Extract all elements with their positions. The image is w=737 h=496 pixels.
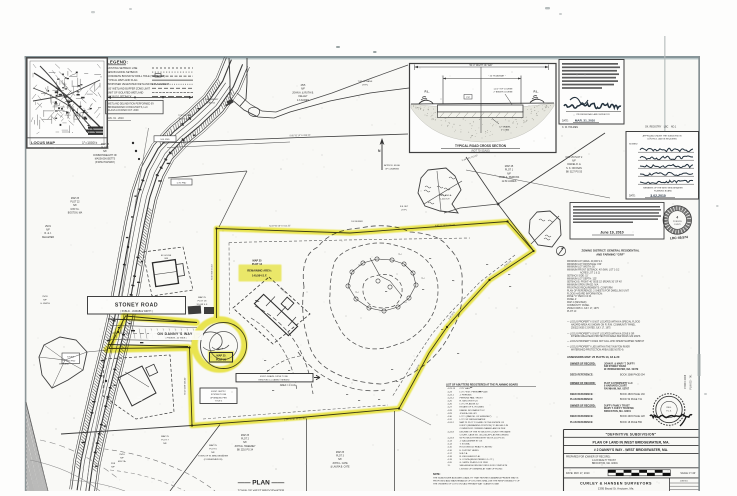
svg-text:BOSTON, MA: BOSTON, MA — [68, 211, 83, 214]
svg-text:JOHN A. KELLEY: JOHN A. KELLEY — [460, 412, 478, 415]
svg-text:LOT 2 PLAN BK 52: LOT 2 PLAN BK 52 — [460, 403, 480, 406]
svg-text:T. SOUSA: T. SOUSA — [460, 443, 471, 446]
svg-text:S.B. SET: S.B. SET — [400, 206, 409, 208]
svg-text:( PUBLIC - VARIABLE WIDTH ): ( PUBLIC - VARIABLE WIDTH ) — [120, 310, 153, 313]
svg-text:BROCKTON, MA. 02301: BROCKTON, MA. 02301 — [592, 462, 618, 465]
svg-text:BOOK 2915 PAGE 128: BOOK 2915 PAGE 128 — [620, 415, 645, 418]
svg-text:MEMBERS OF THE WEST BRIDGEWATE: MEMBERS OF THE WEST BRIDGEWATER — [643, 187, 683, 190]
svg-text:TP-4: TP-4 — [358, 265, 362, 267]
svg-text:MAP 25: MAP 25 — [253, 259, 263, 262]
svg-text:APPROX. EDGE: APPROX. EDGE — [384, 164, 400, 167]
svg-text:BRIDGEWATER CONSULTANTS, LLC: BRIDGEWATER CONSULTANTS, LLC — [108, 106, 148, 109]
svg-text:4-17: 4-17 — [448, 453, 453, 455]
svg-text:PLAN OF REFERENCE: 2 SHEETS F: PLAN OF REFERENCE: 2 SHEETS FOR DWELLING… — [567, 289, 630, 292]
svg-text:DATE:: DATE: — [562, 120, 569, 123]
svg-text:June 19, 2010: June 19, 2010 — [600, 231, 623, 235]
svg-text:—— PLAN ——: —— PLAN —— — [238, 480, 285, 487]
svg-text:BROCKTON, MA. 02301: BROCKTON, MA. 02301 — [604, 410, 631, 413]
svg-text:S.B. FND: S.B. FND — [160, 139, 170, 141]
svg-text:— LOCUS PROPERTY DOES NOT FALL: — LOCUS PROPERTY DOES NOT FALL W/IN NHES… — [567, 340, 645, 343]
svg-text:EXISTING SETBACK LINE: EXISTING SETBACK LINE — [107, 67, 138, 70]
svg-text:TITLE 5: TITLE 5 — [215, 401, 223, 403]
svg-text:25/16: 25/16 — [119, 454, 125, 456]
svg-text:CITY HALL: CITY HALL — [460, 387, 472, 390]
svg-text:TYPICAL ROAD CROSS SECTION: TYPICAL ROAD CROSS SECTION — [455, 144, 507, 148]
svg-text:PLAN REFERENCE:: PLAN REFERENCE: — [570, 421, 593, 424]
svg-text:J. GALLAGHER ET UX: J. GALLAGHER ET UX — [460, 440, 483, 443]
svg-text:DANIEL R. &: DANIEL R. & — [567, 163, 581, 166]
svg-text:BK 2210 PG 34: BK 2210 PG 34 — [237, 449, 254, 451]
svg-text:100’ WETLAND BUFFER ZONE LIMIT: 100’ WETLAND BUFFER ZONE LIMIT — [107, 87, 150, 90]
svg-text:G. SMITH PLAN 14 OF 1968: G. SMITH PLAN 14 OF 1968 — [460, 461, 489, 464]
svg-text:LEGEND:: LEGEND: — [107, 60, 128, 65]
svg-text:COURT, CASE NO. 08-1234-EP1 AS: COURT, CASE NO. 08-1234-EP1 AS RECORDED — [460, 433, 510, 436]
svg-text:140,584 S.F.: 140,584 S.F. — [252, 273, 267, 277]
svg-text:CONTROL LAW IS REQUIRED: CONTROL LAW IS REQUIRED — [647, 137, 678, 140]
svg-text:25/5: 25/5 — [301, 84, 306, 87]
svg-text:1,240 S.F.: 1,240 S.F. — [440, 199, 450, 201]
svg-text:RAYNHAM, MA. 02767: RAYNHAM, MA. 02767 — [604, 388, 630, 391]
svg-text:2″ BINDER COURSE: 2″ BINDER COURSE — [493, 92, 513, 94]
svg-text:PLAN 52 - 741: PLAN 52 - 741 — [690, 374, 693, 390]
svg-text:R. & J.: R. & J. — [45, 233, 52, 235]
svg-text:DEED REFERENCE:: DEED REFERENCE: — [570, 393, 593, 396]
svg-text:R. KELLEHER ET AL: R. KELLEHER ET AL — [460, 455, 482, 458]
svg-text:4-14: 4-14 — [448, 444, 453, 446]
svg-text:LOCUS MAP: LOCUS MAP — [31, 140, 55, 145]
svg-text:MAP 2 (REVISED): MAP 2 (REVISED) — [567, 301, 587, 304]
svg-text:STONEY ROAD: STONEY ROAD — [115, 303, 158, 309]
svg-text:ASSESSORS MAP: 25 PLOTS 13,: ASSESSORS MAP: 25 PLOTS 13, 18 & 20 — [567, 355, 620, 359]
svg-text:″ 24’ ROADWAY ″: ″ 24’ ROADWAY ″ — [488, 75, 505, 78]
svg-text:PLYMOUTH: PLYMOUTH — [673, 221, 683, 223]
svg-text:4-24-9: 4-24-9 — [448, 437, 455, 439]
svg-text:(NOT TO SCALE): (NOT TO SCALE) — [471, 150, 489, 153]
svg-text:PREPARED FOR (OWNER OF RECORD): PREPARED FOR (OWNER OF RECORD): — [566, 455, 611, 458]
svg-text:MAP 25: MAP 25 — [336, 451, 345, 454]
svg-text:A & R REALTY TRUST: A & R REALTY TRUST — [592, 459, 616, 462]
svg-text:— LOCUS PROPERTY IS NOT LOCATE: — LOCUS PROPERTY IS NOT LOCATED WITHIN A… — [567, 332, 635, 335]
svg-text:4-30: 4-30 — [448, 416, 453, 418]
svg-text:(TYP.): (TYP.) — [362, 85, 368, 87]
svg-text:SCALE: 1″=40’: SCALE: 1″=40’ — [680, 472, 696, 475]
svg-text:SYSTEM TO BE: SYSTEM TO BE — [211, 394, 227, 396]
svg-text:CURLEY & HANSEN SURVEYORS: CURLEY & HANSEN SURVEYORS — [580, 481, 652, 485]
svg-text:MAR. 31, 2010: MAR. 31, 2010 — [575, 119, 596, 123]
svg-text:25/19: 25/19 — [61, 360, 67, 362]
svg-text:MINIMUM LOT FRONTAGE: 150’: MINIMUM LOT FRONTAGE: 150’ — [567, 263, 602, 266]
svg-text:M.B.T.A.: M.B.T.A. — [460, 452, 469, 455]
svg-text:3-02-2010: 3-02-2010 — [650, 194, 666, 198]
svg-text:PLAN REFERENCE:: PLAN REFERENCE: — [570, 398, 593, 401]
svg-text:TOP OF BANK: TOP OF BANK — [358, 80, 373, 83]
svg-text:PANEL #: PANEL # — [567, 298, 577, 301]
svg-text:MAP 25: MAP 25 — [217, 355, 227, 358]
svg-text:OK. REGISTRY LBC NO.1: OK. REGISTRY LBC NO.1 — [645, 126, 677, 128]
svg-text:4-23: 4-23 — [448, 391, 453, 393]
svg-text:NOTE:: NOTE: — [433, 473, 441, 476]
svg-text:ACRES LOT 1 & 2): ACRES LOT 1 & 2) — [580, 272, 600, 275]
svg-text:4: 4 — [676, 216, 678, 220]
svg-text:APPROVAL UNDER THE SUBDIVISION: APPROVAL UNDER THE SUBDIVISION — [643, 134, 682, 137]
svg-text:11.: 11. — [448, 465, 451, 467]
svg-text:100’ BUFFER: 100’ BUFFER — [351, 221, 363, 223]
svg-text:DECREE OF THE PLYMOUTH COUNTY: DECREE OF THE PLYMOUTH COUNTY PROBATE — [460, 430, 512, 433]
svg-text:COMMUNITY PANEL: COMMUNITY PANEL — [567, 304, 590, 307]
svg-text:MAP 25: MAP 25 — [198, 296, 207, 299]
svg-text:OWNER OF RECORD:: OWNER OF RECORD: — [570, 362, 596, 365]
svg-text:4-24-2: 4-24-2 — [448, 397, 455, 399]
svg-text:PERKINS FAM. TRUST: PERKINS FAM. TRUST — [460, 396, 484, 399]
svg-text:250322 0005 C JULY 17, 1975: 250322 0005 C JULY 17, 1975 — [567, 308, 599, 310]
svg-text:TOWN OF W. BRIDGEWATER: TOWN OF W. BRIDGEWATER — [198, 455, 229, 458]
svg-text:4.3 ACRES: 4.3 ACRES — [297, 99, 309, 102]
svg-text:PLAN OF LAND IN WEST BRID: PLAN OF LAND IN WEST BRIDGEWATER, MA. — [593, 440, 670, 444]
svg-text:P.L.: P.L. — [534, 90, 539, 94]
svg-text:REMAINING AREA:: REMAINING AREA: — [247, 268, 272, 272]
svg-text:SIGNED:: SIGNED: — [629, 144, 638, 146]
svg-text:LIMIT OF ISOLATED WETLAND: LIMIT OF ISOLATED WETLAND — [107, 91, 143, 94]
svg-text:TOP OF WAY: TOP OF WAY — [178, 114, 192, 117]
svg-text:COMMONWEALTH OF: COMMONWEALTH OF — [93, 154, 118, 157]
svg-text:PROFESSIONAL LAND SURVEYOR: PROFESSIONAL LAND SURVEYOR — [576, 113, 610, 116]
svg-text:EX. HOUSE: EX. HOUSE — [161, 255, 172, 257]
svg-text:OWNER OF RECORD:: OWNER OF RECORD: — [570, 404, 596, 407]
svg-text:4-26: 4-26 — [448, 404, 453, 406]
svg-text:P.L.: P.L. — [425, 90, 430, 94]
svg-text:4-24-1: 4-24-1 — [448, 394, 455, 396]
svg-text:TP-4: TP-4 — [398, 254, 402, 256]
svg-text:HAZARD AREA AS SHOWN ON F.I.R.: HAZARD AREA AS SHOWN ON F.I.R.M. COMMUNI… — [571, 324, 636, 327]
svg-text:25/21: 25/21 — [45, 226, 51, 228]
svg-text:REG.: REG. — [666, 407, 672, 409]
svg-text:4-16: 4-16 — [448, 450, 453, 452]
svg-text:DEED REFERENCE:: DEED REFERENCE: — [570, 415, 593, 418]
svg-text:INTERIM WELLHEAD PROTECTION AR: INTERIM WELLHEAD PROTECTION AREA PER MAS… — [571, 335, 641, 338]
svg-text:W. BRIDGEWATER, MA. 02379: W. BRIDGEWATER, MA. 02379 — [604, 368, 639, 371]
svg-text:N 02°11’W 158.00’: N 02°11’W 158.00’ — [185, 377, 187, 395]
svg-text:MAP 25: MAP 25 — [71, 197, 80, 200]
svg-text:FRONTAGE REQUIREMENTS: CONFOR: FRONTAGE REQUIREMENTS: CONFORM — [567, 286, 613, 289]
svg-text:EX.: EX. — [137, 397, 141, 399]
svg-text:LIST OF ABUTTERS REGISTERED AT: LIST OF ABUTTERS REGISTERED AT THE PLANN… — [446, 384, 518, 387]
svg-text:PLANNING BOARD: PLANNING BOARD — [654, 189, 672, 192]
svg-text:50’-0″ RIGHT OF WAY: 50’-0″ RIGHT OF WAY — [469, 64, 493, 67]
svg-text:# 2 DANNY’S WAY - WEST: # 2 DANNY’S WAY - WEST BRIDGEWATER, MA. — [594, 448, 668, 452]
svg-text:1395 Broad St. Any: 1395 Broad St. Anytown, Ma. — [598, 487, 634, 491]
svg-text:12.6± ACRES: 12.6± ACRES — [502, 180, 517, 183]
svg-text:MINIMUM OPEN SPACE: N/A: MINIMUM OPEN SPACE: N/A — [567, 283, 599, 286]
svg-text:THE SUBDIVIDER ASSUMES LIABILI: THE SUBDIVIDER ASSUMES LIABILITY THAT HE… — [433, 476, 519, 479]
svg-text:4-25: 4-25 — [448, 401, 453, 403]
svg-text:N/F: N/F — [507, 172, 511, 175]
svg-text:PLOT 6: PLOT 6 — [209, 449, 217, 451]
svg-text:THE OWNERS OF LOTS ON SAID PRI: THE OWNERS OF LOTS ON SAID PRIVATE WAY /… — [433, 482, 500, 485]
svg-text:MINIMUM LOT AREA: 40,000 S.F.: MINIMUM LOT AREA: 40,000 S.F. — [567, 260, 603, 263]
svg-text:PLOT 7: PLOT 7 — [161, 440, 169, 442]
svg-text:4-27: 4-27 — [448, 407, 453, 409]
svg-text:″DEFINITIVE SUBDIVISION″: ″DEFINITIVE SUBDIVISION″ — [606, 432, 657, 436]
svg-text:N/F: N/F — [243, 442, 247, 444]
svg-text:DANIEL NOONAN ET UX: DANIEL NOONAN ET UX — [460, 409, 486, 412]
svg-text:TP-4: TP-4 — [355, 292, 359, 294]
svg-text:SETBACK SIDE: 15’: SETBACK SIDE: 15’ — [567, 275, 589, 278]
svg-text:MAP 25: MAP 25 — [241, 434, 250, 437]
svg-text:S. K. NOONAN: S. K. NOONAN — [566, 167, 582, 170]
svg-text:TP-4: TP-4 — [403, 302, 407, 304]
svg-text:4-15: 4-15 — [448, 447, 453, 449]
svg-text:MAP 25: MAP 25 — [505, 165, 514, 168]
svg-text:KELLEHER: KELLEHER — [42, 237, 54, 239]
svg-text:N/F: N/F — [73, 205, 77, 207]
svg-text:BOOK 3088 PAGE 094: BOOK 3088 PAGE 094 — [620, 374, 645, 377]
svg-text:N 01°30’E 93.50’: N 01°30’E 93.50’ — [212, 264, 214, 280]
svg-text:PROPOSED AND MAINTENANCE OF UT: PROPOSED AND MAINTENANCE OF UTILITIES SH… — [433, 479, 520, 482]
svg-text:N/F: N/F — [301, 88, 305, 91]
svg-text:PLOT 20: PLOT 20 — [216, 358, 227, 361]
svg-text:OF CLEARING: OF CLEARING — [385, 167, 399, 170]
svg-text:BOOK 18 PAGE 550: BOOK 18 PAGE 550 — [620, 421, 643, 424]
svg-text:& LAURA B. CATE: & LAURA B. CATE — [330, 465, 350, 468]
svg-text:N/F: N/F — [103, 151, 107, 153]
svg-text:D.H. FND: D.H. FND — [177, 182, 187, 184]
svg-text:COMMON BY OWNERS NAMED ABOVE P: COMMON BY OWNERS NAMED ABOVE PER — [460, 427, 506, 430]
svg-text:N/F: N/F — [572, 161, 576, 163]
svg-text:DEED REFERENCE:: DEED REFERENCE: — [570, 374, 593, 377]
svg-text:PLOT 22: PLOT 22 — [70, 202, 80, 204]
svg-text:N/F: N/F — [338, 459, 342, 461]
svg-text:PLOT 13: PLOT 13 — [252, 263, 263, 266]
svg-text:PLOT 1: PLOT 1 — [101, 148, 110, 150]
svg-text:JOHN L. CATE: JOHN L. CATE — [332, 462, 348, 465]
svg-text:ZONING DISTRICT: GENERAL RESI: ZONING DISTRICT: GENERAL RESIDENTIAL — [581, 249, 639, 253]
svg-text:BK 3127 PG 55: BK 3127 PG 55 — [566, 171, 583, 173]
svg-text:M.B.T.A.: M.B.T.A. — [118, 460, 127, 463]
svg-text:— LOCUS PROPERTY IS NOT LOCATE: — LOCUS PROPERTY IS NOT LOCATED WITHIN A… — [567, 321, 640, 324]
svg-text:— LOCUS PROPERTY LIES WITHIN T: — LOCUS PROPERTY LIES WITHIN THE TAUNTON… — [567, 346, 630, 349]
svg-text:ZONE ″C″ PER F.I.R.M.: ZONE ″C″ PER F.I.R.M. — [567, 296, 592, 298]
svg-text:S. COSTA (REGISTERED LD. CT.): S. COSTA (REGISTERED LD. CT.) — [460, 458, 494, 461]
svg-text:4-20: 4-20 — [448, 462, 453, 464]
svg-text:OWNER OF RECORD:: OWNER OF RECORD: — [570, 382, 596, 385]
svg-text:8 BK 04: 8 BK 04 — [207, 103, 216, 105]
svg-text:4-18: 4-18 — [448, 456, 453, 458]
svg-text:AND FARMING ″GRF″: AND FARMING ″GRF″ — [596, 252, 625, 256]
svg-text:BOOK 4815 PAGE 130: BOOK 4815 PAGE 130 — [620, 393, 645, 396]
svg-text:WETLAND DELINEATION PERFORMED: WETLAND DELINEATION PERFORMED BY — [108, 102, 154, 105]
svg-text:J. PERKINS: J. PERKINS — [460, 394, 472, 396]
svg-text:(TYP): (TYP) — [401, 209, 407, 211]
svg-text:ESTATE OF K. HOLMES: ESTATE OF K. HOLMES — [460, 406, 485, 409]
svg-text:WETLAND: WETLAND — [59, 362, 69, 365]
svg-text:DATE:: DATE: — [629, 195, 636, 198]
svg-text:12″ GRAVEL: 12″ GRAVEL — [499, 126, 511, 129]
svg-text:(CONSERVATION): (CONSERVATION) — [204, 458, 223, 461]
svg-text:R. TAYLOR ET UX: R. TAYLOR ET UX — [460, 400, 479, 403]
svg-text:250322 0005 C DATED JULY 17,: 250322 0005 C DATED JULY 17, 1975 — [571, 326, 611, 329]
svg-text:PLOT 1: PLOT 1 — [505, 169, 514, 172]
svg-text:MAP 25: MAP 25 — [161, 435, 170, 438]
svg-text:JOHN E. SWEENEY: JOHN E. SWEENEY — [234, 446, 256, 448]
svg-text:4-24-2: 4-24-2 — [448, 422, 455, 424]
svg-text:TYPICAL WETLAND FLAG: TYPICAL WETLAND FLAG — [107, 79, 138, 82]
svg-text:TP-4: TP-4 — [421, 278, 425, 280]
svg-text:LOT 7 EST. PERKINS PLAN: LOT 7 EST. PERKINS PLAN — [460, 390, 488, 393]
svg-text:HOCKOMOCK REALTY LIMITED: HOCKOMOCK REALTY LIMITED — [460, 446, 493, 449]
svg-text:BOOK 52 PAGE 741: BOOK 52 PAGE 741 — [620, 398, 643, 401]
svg-text:4-31: 4-31 — [448, 419, 453, 421]
svg-text:31,049 S.F.: 31,049 S.F. — [196, 304, 207, 306]
svg-text:KELLEY: KELLEY — [298, 95, 307, 98]
svg-text:4-23-13: 4-23-13 — [448, 388, 456, 390]
svg-text:LISTING OF OWNERS AT TIME OF F: LISTING OF OWNERS AT TIME OF FILING — [460, 467, 503, 470]
svg-text:4-28: 4-28 — [448, 410, 453, 412]
svg-text:EXIST. SEPTIC: EXIST. SEPTIC — [211, 391, 226, 393]
svg-text:25/20: 25/20 — [42, 296, 48, 298]
svg-text:P.L.S.: P.L.S. — [666, 411, 672, 413]
svg-text:MAP 25 PLOT 13 LAND OF THE EST: MAP 25 PLOT 13 LAND OF THE ESTATE OF — [460, 421, 505, 424]
svg-text:PROPOSED VEGETATED WETLAND REP: PROPOSED VEGETATED WETLAND REPLACEMENT — [107, 83, 169, 86]
svg-text:4″ LOAM: 4″ LOAM — [501, 129, 509, 132]
svg-text:JOHN A. & RUTH B.: JOHN A. & RUTH B. — [292, 91, 314, 94]
svg-text:P·608 / 2006: P·608 / 2006 — [684, 374, 687, 389]
svg-text:MAP 25: MAP 25 — [101, 143, 110, 146]
svg-text:G. SMITH: G. SMITH — [40, 303, 50, 305]
svg-text:CONCRETE BOUND W/ DRILL HOLE (: CONCRETE BOUND W/ DRILL HOLE (TO BE SET) — [107, 75, 165, 78]
svg-text:MINIMUM FRONT SETBACK: 40’ (: MINIMUM FRONT SETBACK: 40’ (MIN. LOT 1-1… — [567, 269, 620, 272]
svg-text:AREA = 2.1 AC.: AREA = 2.1 AC. — [280, 384, 297, 387]
svg-text:FLAGS LOCATED OCT. 2009: FLAGS LOCATED OCT. 2009 — [108, 109, 139, 112]
svg-text:4-19: 4-19 — [448, 459, 453, 461]
svg-text:(STATE HIGHWAY): (STATE HIGHWAY) — [95, 161, 115, 164]
svg-text:MINIMUM LOT WIDTH: 50’: MINIMUM LOT WIDTH: 50’ — [567, 267, 596, 269]
svg-text:NEW BUILDING SETBACK: NEW BUILDING SETBACK — [107, 71, 138, 74]
svg-text:PLOT 18: PLOT 18 — [198, 301, 207, 303]
svg-text:REMOVED & LOAMED / SEEDED: REMOVED & LOAMED / SEEDED — [259, 378, 290, 381]
svg-text:L. SALISBURY: L. SALISBURY — [204, 98, 219, 101]
svg-text:ON DANNY’S WAY: ON DANNY’S WAY — [157, 332, 193, 336]
svg-text:PLOT 2: PLOT 2 — [241, 439, 250, 441]
svg-text:LOT 2 W. BRIDGEWATER: LOT 2 W. BRIDGEWATER — [460, 418, 486, 421]
svg-text:JOB NO.: JOB NO. — [680, 480, 689, 482]
svg-text:M.B.T.A.: M.B.T.A. — [71, 208, 80, 211]
svg-text:1-1/2″ TOP COURSE: 1-1/2″ TOP COURSE — [494, 89, 514, 91]
svg-text:SEE ASSESSORS RECORDS FOR COMP: SEE ASSESSORS RECORDS FOR COMPLETE — [460, 464, 508, 467]
svg-text:N/F: N/F — [46, 230, 50, 232]
svg-text:K. W. HOLMES: K. W. HOLMES — [562, 127, 578, 129]
svg-text:DATE: MAY 17, 2010: DATE: MAY 17, 2010 — [566, 472, 590, 475]
svg-text:( PRIVATE - 40’ WIDE ): ( PRIVATE - 40’ WIDE ) — [166, 337, 187, 340]
svg-text:LOT 1 (PARCEL OF SWEENEY): LOT 1 (PARCEL OF SWEENEY) — [460, 415, 492, 418]
svg-text:PLOT 3: PLOT 3 — [336, 456, 345, 458]
svg-text:SETBACKS: FRONT 40’ SIDE 15’: SETBACKS: FRONT 40’ SIDE 15’ (REAR) 30’ … — [567, 280, 623, 283]
svg-text:N 87°42’10″ E 512.33’: N 87°42’10″ E 512.33’ — [269, 225, 291, 227]
svg-text:EXIST. GRAVEL DRIVE TO BE: EXIST. GRAVEL DRIVE TO BE — [260, 375, 288, 378]
svg-text:JAN. 31 · 2010: JAN. 31 · 2010 — [107, 117, 124, 120]
svg-text:4-13: 4-13 — [448, 441, 453, 443]
svg-text:MASSACHUSETTS: MASSACHUSETTS — [95, 157, 116, 160]
svg-text:#638: #638 — [164, 258, 168, 260]
svg-text:FLOOD HAZARD INFORMATION:: FLOOD HAZARD INFORMATION: — [567, 292, 603, 295]
svg-text:COUNTY: COUNTY — [674, 224, 682, 226]
svg-text:E. DUPONT HEIRS: E. DUPONT HEIRS — [460, 450, 480, 452]
svg-text:ELEV 104.2: ELEV 104.2 — [179, 119, 191, 121]
svg-text:PLOT 13: PLOT 13 — [567, 311, 577, 313]
svg-text:1″/FT: 1″/FT — [466, 97, 470, 99]
svg-text:WATERSHED PROTECTION AREA (SE: WATERSHED PROTECTION AREA (SEE NOTE 4) — [571, 349, 624, 352]
svg-text:W/ PLYMOUTH REGISTRY BOOK 201: W/ PLYMOUTH REGISTRY BOOK 201 PG 55 — [460, 437, 506, 439]
svg-text:MAP 25: MAP 25 — [209, 444, 218, 447]
svg-text:DUFFY (REMAINING PORTION) TO B: DUFFY (REMAINING PORTION) TO BE HELD IN — [460, 424, 509, 427]
svg-text:4-24-8: 4-24-8 — [448, 431, 455, 433]
svg-text:HOUSE: HOUSE — [136, 400, 143, 402]
svg-text:MINIMUM LOT DEPTH: 125’: MINIMUM LOT DEPTH: 125’ — [567, 279, 597, 281]
svg-text:1″=1000’±: 1″=1000’± — [82, 141, 97, 145]
svg-text:UPGRADED PER: UPGRADED PER — [210, 396, 227, 399]
